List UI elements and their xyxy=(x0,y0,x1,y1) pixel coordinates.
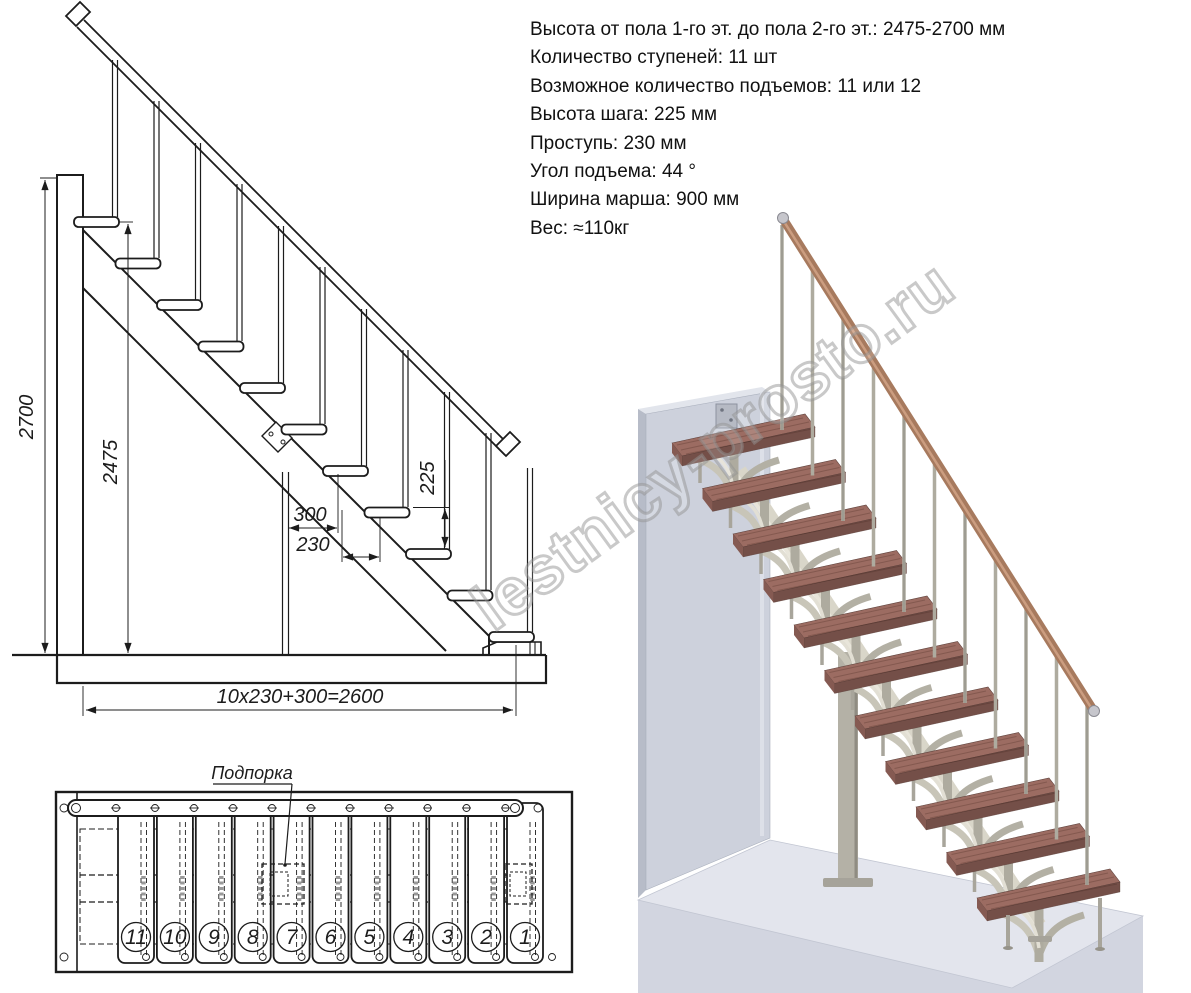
step-number: 1 xyxy=(519,926,531,949)
step-number: 3 xyxy=(441,926,453,949)
spec-line-angle: Угол подъема: 44 ° xyxy=(530,158,1050,186)
wall-post xyxy=(57,175,83,655)
spec-line-height-range: Высота от пола 1-го эт. до пола 2-го эт.… xyxy=(530,16,1050,44)
step-number: 5 xyxy=(364,926,376,949)
stair-spec-sheet: 2700 2475 225 300 230 10x230+300=2600 xyxy=(0,0,1191,993)
spec-line-step-height: Высота шага: 225 мм xyxy=(530,101,1050,129)
handrail-bottom-ferrule xyxy=(1089,706,1100,717)
support-label: Подпорка xyxy=(211,763,292,783)
dim-floor-height-label: 2475 xyxy=(100,439,122,485)
central-support-post xyxy=(262,422,292,655)
render-3d xyxy=(638,213,1143,993)
render-floor-slab xyxy=(638,840,1143,993)
dim-total-run-label: 10x230+300=2600 xyxy=(217,686,384,708)
plan-view-drawing: Подпорка 11 10 9 8 7 6 5 4 3 2 xyxy=(56,763,572,972)
step-number: 2 xyxy=(479,926,492,949)
step-number: 4 xyxy=(402,926,414,949)
step-number: 7 xyxy=(286,926,299,949)
step-number: 11 xyxy=(125,926,147,949)
dim-total-height-label: 2700 xyxy=(16,395,38,441)
handrail-side xyxy=(66,2,520,456)
step-number: 9 xyxy=(208,926,220,949)
side-view-drawing: 2700 2475 225 300 230 10x230+300=2600 xyxy=(12,2,546,716)
spec-line-tread: Проступь: 230 мм xyxy=(530,130,1050,158)
spec-line-rise-count: Возможное количество подъемов: 11 или 12 xyxy=(530,73,1050,101)
floor-slab xyxy=(57,655,546,683)
spec-list: Высота от пола 1-го эт. до пола 2-го эт.… xyxy=(530,16,1050,243)
spec-line-step-count: Количество ступеней: 11 шт xyxy=(530,44,1050,72)
spec-line-weight: Вес: ≈110кг xyxy=(530,215,1050,243)
dim-support-offset-label: 300 xyxy=(293,504,326,526)
step-number: 10 xyxy=(163,926,187,949)
dim-tread-depth-label: 230 xyxy=(295,534,329,556)
step-number: 6 xyxy=(325,926,337,949)
treads-side xyxy=(74,217,534,642)
spec-line-width: Ширина марша: 900 мм xyxy=(530,186,1050,214)
wall-bracket xyxy=(716,404,737,428)
step-number: 8 xyxy=(247,926,259,949)
plan-handrail xyxy=(68,800,523,816)
dim-step-height-label: 225 xyxy=(417,460,439,495)
